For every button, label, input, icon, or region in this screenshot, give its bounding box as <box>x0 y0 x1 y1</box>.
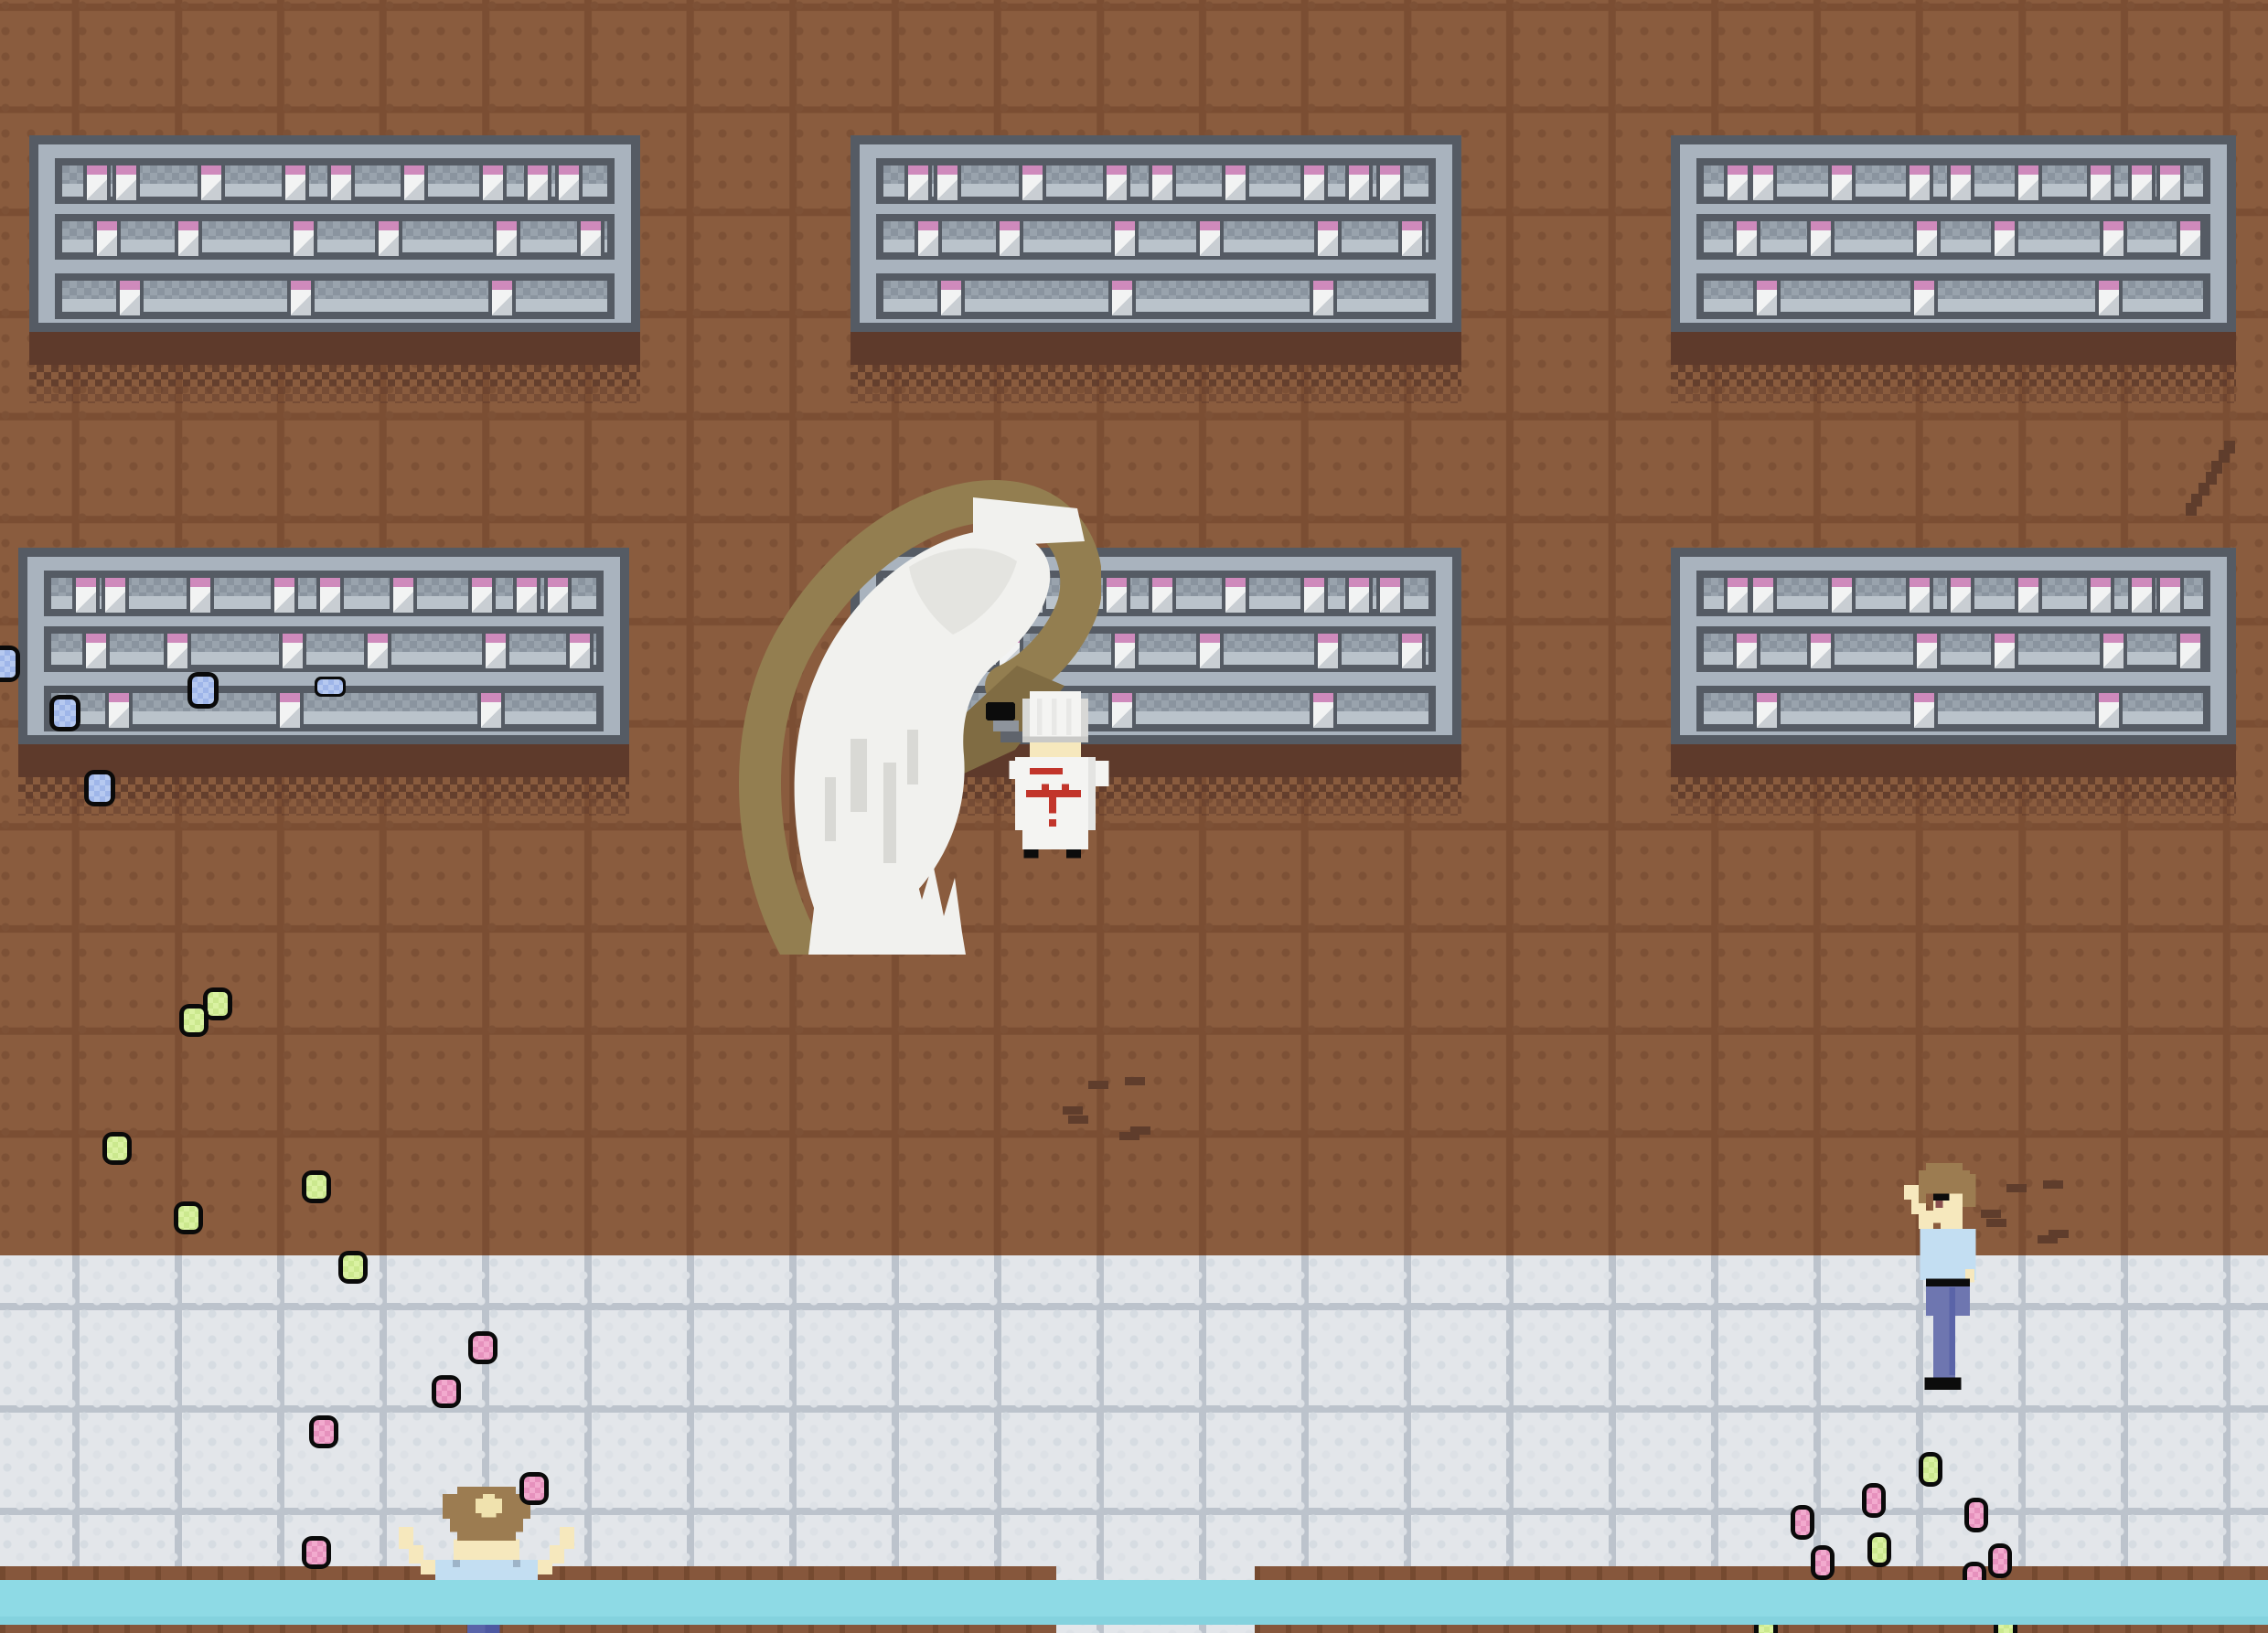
milk-carton <box>97 221 117 256</box>
milk-carton <box>1910 578 1930 613</box>
milk-carton <box>1107 165 1127 200</box>
milk-carton <box>1811 221 1831 256</box>
milk-carton-slot <box>271 574 298 613</box>
milk-carton <box>1000 221 1020 256</box>
shelf-row <box>44 626 604 672</box>
milk-carton <box>2160 165 2180 200</box>
milk-carton <box>86 634 106 668</box>
milk-carton-slot <box>83 162 111 200</box>
milk-carton <box>1728 165 1748 200</box>
milk-carton <box>1225 165 1246 200</box>
candy-green[interactable] <box>302 1170 331 1203</box>
milk-carton-slot <box>316 574 344 613</box>
milk-carton-slot <box>1906 162 1933 200</box>
candy-fill <box>524 1477 544 1500</box>
milk-carton-slot <box>1111 218 1139 256</box>
candy-pink[interactable] <box>1862 1483 1886 1518</box>
milk-carton-slot <box>555 162 583 200</box>
shelf-unit-6 <box>1671 548 2236 744</box>
milk-carton-slot <box>544 574 572 613</box>
milk-carton-slot <box>1807 218 1835 256</box>
candy-green[interactable] <box>1867 1532 1891 1567</box>
shelf-shadow <box>29 332 640 365</box>
shelf-unit-2 <box>850 135 1461 332</box>
milk-carton-slot <box>401 162 428 200</box>
milk-carton <box>167 634 187 668</box>
milk-carton <box>1304 578 1324 613</box>
milk-carton <box>201 165 221 200</box>
candy-fill <box>1923 1457 1938 1482</box>
shelf-row <box>876 273 1436 319</box>
milk-carton-slot <box>290 218 317 256</box>
milk-carton-slot <box>904 162 932 200</box>
milk-carton <box>1951 165 1971 200</box>
milk-carton <box>1115 634 1135 668</box>
milk-carton <box>331 165 351 200</box>
milk-carton <box>548 578 568 613</box>
candy-fill <box>208 992 228 1016</box>
milk-carton <box>2180 221 2200 256</box>
milk-carton-slot <box>2100 218 2127 256</box>
milk-carton-slot <box>2177 218 2204 256</box>
milk-carton <box>1757 281 1777 315</box>
shelf-row <box>1696 571 2210 616</box>
candy-blue[interactable] <box>49 695 80 731</box>
milk-carton <box>1152 165 1172 200</box>
milk-carton <box>2099 693 2119 728</box>
shelf-row <box>55 273 615 319</box>
milk-carton-slot <box>524 162 551 200</box>
milk-carton <box>1152 578 1172 613</box>
milk-carton <box>2132 578 2152 613</box>
milk-carton-slot <box>1103 162 1130 200</box>
candy-fill <box>0 650 16 678</box>
candy-pink[interactable] <box>302 1536 331 1569</box>
milk-carton-slot <box>1196 218 1224 256</box>
milk-carton-slot <box>164 630 191 668</box>
shelf-row <box>1696 158 2210 204</box>
milk-carton-slot <box>1222 574 1249 613</box>
milk-carton-slot <box>1947 574 1974 613</box>
milk-carton-slot <box>187 574 214 613</box>
milk-carton <box>472 578 492 613</box>
milk-carton-slot <box>2087 574 2114 613</box>
milk-carton <box>1832 578 1852 613</box>
milk-carton <box>280 693 300 728</box>
milk-carton-slot <box>287 277 315 315</box>
milk-carton-slot <box>468 574 496 613</box>
candy-blue[interactable] <box>84 770 115 806</box>
milk-carton-slot <box>1314 630 1342 668</box>
candy-pink[interactable] <box>1964 1498 1988 1532</box>
milk-carton <box>1115 221 1135 256</box>
shelf-row <box>876 158 1436 204</box>
candy-fill <box>184 1009 204 1032</box>
milk-carton <box>1402 221 1422 256</box>
milk-carton-slot <box>2156 574 2184 613</box>
milk-carton-slot <box>488 277 516 315</box>
milk-carton <box>178 221 198 256</box>
shelf-shadow <box>1671 744 2236 777</box>
milk-carton <box>1995 221 2015 256</box>
milk-carton-slot <box>1149 162 1176 200</box>
milk-carton <box>2103 634 2124 668</box>
milk-carton-slot <box>2095 277 2123 315</box>
shelf-shadow <box>1671 332 2236 365</box>
milk-carton <box>76 578 96 613</box>
milk-carton-slot <box>2156 162 2184 200</box>
milk-carton <box>291 281 311 315</box>
milk-carton-slot <box>327 162 355 200</box>
candy-fill <box>1872 1537 1887 1563</box>
milk-carton <box>320 578 340 613</box>
milk-carton <box>109 693 129 728</box>
milk-carton-slot <box>1828 162 1856 200</box>
milk-carton-slot <box>479 162 507 200</box>
candy-green[interactable] <box>179 1004 209 1037</box>
shelf-row <box>1696 273 2210 319</box>
candy-pink[interactable] <box>468 1331 497 1364</box>
milk-carton <box>918 221 938 256</box>
milk-carton-slot <box>1733 218 1760 256</box>
milk-carton <box>1107 578 1127 613</box>
counter-wood-top-right <box>1255 1566 2268 1580</box>
milk-carton <box>481 693 501 728</box>
shelf-dither <box>29 365 640 418</box>
milk-carton-slot <box>198 162 225 200</box>
milk-carton <box>2091 165 2111 200</box>
milk-carton-slot <box>112 162 140 200</box>
milk-carton-slot <box>279 630 306 668</box>
milk-carton <box>1112 281 1132 315</box>
shelf-unit-1 <box>29 135 640 332</box>
milk-carton-slot <box>2128 574 2156 613</box>
candy-fill <box>343 1255 363 1279</box>
milk-carton <box>294 221 314 256</box>
candy-pink[interactable] <box>1988 1543 2012 1578</box>
milk-carton-slot <box>577 218 604 256</box>
candy-fill <box>314 1420 334 1444</box>
milk-carton-slot <box>1947 162 1974 200</box>
milk-carton-slot <box>937 277 965 315</box>
candy-fill <box>473 1336 493 1360</box>
shelf-row <box>55 214 615 260</box>
milk-carton <box>1225 578 1246 613</box>
milk-carton-slot <box>1906 574 1933 613</box>
milk-carton <box>1995 634 2015 668</box>
game-viewport[interactable] <box>0 0 2268 1633</box>
milk-carton-slot <box>364 630 391 668</box>
candy-fill <box>54 699 76 727</box>
shelf-row <box>876 214 1436 260</box>
milk-carton-slot <box>934 162 961 200</box>
candy-fill <box>192 677 214 704</box>
milk-carton-slot <box>1019 162 1046 200</box>
milk-carton-slot <box>2015 162 2042 200</box>
candy-green[interactable] <box>338 1251 368 1284</box>
milk-carton <box>393 578 413 613</box>
milk-carton <box>404 165 424 200</box>
milk-carton-slot <box>282 162 309 200</box>
milk-carton-slot <box>375 218 402 256</box>
shelf-row <box>44 571 604 616</box>
milk-carton <box>1753 578 1773 613</box>
shelf-row <box>55 158 615 204</box>
milk-carton <box>368 634 388 668</box>
milk-carton <box>1349 578 1369 613</box>
milk-carton <box>2018 578 2038 613</box>
milk-carton-slot <box>1724 162 1751 200</box>
milk-carton-slot <box>2015 574 2042 613</box>
shelf-unit-4 <box>18 548 629 744</box>
milk-carton-slot <box>1910 689 1938 728</box>
milk-carton-slot <box>482 630 509 668</box>
milk-carton-slot <box>1398 630 1426 668</box>
milk-carton <box>2103 221 2124 256</box>
milk-carton-slot <box>1300 162 1328 200</box>
milk-carton <box>1313 281 1333 315</box>
milk-carton-slot <box>477 689 505 728</box>
milk-carton <box>1753 165 1773 200</box>
debris-ring <box>1088 1081 1108 1089</box>
shelf-dither <box>1671 777 2236 830</box>
milk-carton-slot <box>1828 574 1856 613</box>
milk-carton <box>941 281 961 315</box>
shelf-row <box>1696 686 2210 731</box>
milk-carton-slot <box>1103 574 1130 613</box>
milk-carton-slot <box>915 218 942 256</box>
milk-carton <box>937 165 957 200</box>
milk-carton <box>1728 578 1748 613</box>
milk-carton-slot <box>1108 277 1136 315</box>
candy-green[interactable] <box>1919 1452 1942 1487</box>
milk-carton <box>1380 578 1400 613</box>
candy-blue[interactable] <box>315 677 346 697</box>
debris-scratch <box>2191 494 2202 507</box>
milk-carton <box>379 221 399 256</box>
milk-carton-slot <box>1345 162 1373 200</box>
milk-carton <box>1757 693 1777 728</box>
milk-carton <box>1022 165 1043 200</box>
milk-carton-slot <box>1807 630 1835 668</box>
milk-carton-slot <box>1376 162 1404 200</box>
candy-fill <box>1795 1510 1810 1535</box>
milk-carton <box>1737 634 1757 668</box>
milk-carton-slot <box>1991 218 2018 256</box>
milk-carton-slot <box>1149 574 1176 613</box>
milk-carton-slot <box>566 630 594 668</box>
milk-carton <box>908 165 928 200</box>
milk-carton-slot <box>2087 162 2114 200</box>
milk-carton <box>1951 578 1971 613</box>
milk-carton <box>581 221 601 256</box>
milk-carton-slot <box>1222 162 1249 200</box>
milk-carton-slot <box>276 689 304 728</box>
candy-pink[interactable] <box>432 1375 461 1408</box>
candy-pink[interactable] <box>1791 1505 1814 1540</box>
milk-carton <box>1402 634 1422 668</box>
candy-fill <box>107 1137 127 1160</box>
milk-carton-slot <box>1733 630 1760 668</box>
debris-ring <box>2006 1184 2027 1192</box>
candy-fill <box>317 679 343 694</box>
milk-carton-slot <box>1345 574 1373 613</box>
milk-carton-slot <box>116 277 144 315</box>
candy-pink[interactable] <box>519 1472 549 1505</box>
milk-carton <box>570 634 590 668</box>
shopper-character[interactable] <box>1904 1163 1992 1397</box>
milk-carton <box>1917 634 1937 668</box>
milk-carton <box>517 578 537 613</box>
milk-carton <box>190 578 210 613</box>
candy-fill <box>436 1380 456 1404</box>
milk-carton <box>1811 634 1831 668</box>
chef-character[interactable] <box>986 691 1118 859</box>
candy-blue[interactable] <box>0 646 20 682</box>
shelf-row <box>1696 626 2210 672</box>
milk-carton <box>1318 221 1338 256</box>
milk-carton-slot <box>175 218 202 256</box>
milk-carton-slot <box>1753 689 1781 728</box>
milk-carton <box>2180 634 2200 668</box>
conveyor-belt <box>0 1580 2268 1625</box>
milk-carton-slot <box>493 218 520 256</box>
milk-carton-slot <box>1398 218 1426 256</box>
milk-carton-slot <box>2177 630 2204 668</box>
milk-carton-slot <box>93 218 121 256</box>
milk-carton <box>1832 165 1852 200</box>
milk-carton-slot <box>2100 630 2127 668</box>
candy-pink[interactable] <box>309 1415 338 1448</box>
milk-carton <box>1917 221 1937 256</box>
candy-fill <box>1993 1548 2007 1574</box>
milk-carton-slot <box>513 574 540 613</box>
milk-carton <box>283 634 303 668</box>
milk-carton-slot <box>1376 574 1404 613</box>
candy-green[interactable] <box>174 1201 203 1234</box>
milk-carton <box>1304 165 1324 200</box>
shelf-dither <box>850 365 1461 418</box>
milk-carton <box>1914 281 1934 315</box>
milk-carton <box>1200 634 1220 668</box>
candy-fill <box>89 774 111 802</box>
shelf-row <box>1696 214 2210 260</box>
candy-fill <box>1815 1550 1830 1575</box>
milk-carton <box>120 281 140 315</box>
milk-carton <box>1914 693 1934 728</box>
milk-carton-slot <box>82 630 110 668</box>
milk-carton <box>1349 165 1369 200</box>
milk-carton-slot <box>1314 218 1342 256</box>
milk-carton-slot <box>1913 630 1941 668</box>
candy-green[interactable] <box>102 1132 132 1165</box>
milk-carton <box>87 165 107 200</box>
milk-carton-slot <box>1910 277 1938 315</box>
milk-carton <box>1200 221 1220 256</box>
milk-carton <box>492 281 512 315</box>
milk-carton-slot <box>996 218 1023 256</box>
milk-carton <box>559 165 579 200</box>
milk-carton <box>2132 165 2152 200</box>
shelf-shadow <box>850 332 1461 365</box>
milk-carton <box>2018 165 2038 200</box>
milk-carton <box>1313 693 1333 728</box>
milk-carton <box>1737 221 1757 256</box>
candy-fill <box>178 1206 198 1230</box>
milk-carton <box>2091 578 2111 613</box>
candy-fill <box>306 1175 326 1199</box>
candy-fill <box>1969 1502 1984 1528</box>
milk-carton <box>2160 578 2180 613</box>
milk-carton <box>105 578 125 613</box>
shelf-unit-3 <box>1671 135 2236 332</box>
milk-carton <box>274 578 294 613</box>
milk-carton-slot <box>1300 574 1328 613</box>
milk-carton <box>486 634 506 668</box>
milk-carton-slot <box>1991 630 2018 668</box>
milk-carton-slot <box>102 574 129 613</box>
milk-carton <box>2099 281 2119 315</box>
milk-carton-slot <box>1310 277 1337 315</box>
candy-pink[interactable] <box>1811 1545 1835 1580</box>
milk-carton-slot <box>1753 277 1781 315</box>
milk-carton <box>1318 634 1338 668</box>
milk-carton <box>285 165 305 200</box>
shelf-dither <box>1671 365 2236 418</box>
milk-carton-slot <box>1913 218 1941 256</box>
milk-carton-slot <box>72 574 100 613</box>
milk-carton <box>1380 165 1400 200</box>
milk-carton <box>483 165 503 200</box>
candy-fill <box>1867 1488 1881 1513</box>
milk-carton <box>497 221 517 256</box>
milk-carton-slot <box>1196 630 1224 668</box>
milk-carton-slot <box>105 689 133 728</box>
milk-carton-slot <box>390 574 417 613</box>
milk-carton-slot <box>1749 162 1777 200</box>
milk-carton <box>116 165 136 200</box>
milk-carton-slot <box>1111 630 1139 668</box>
milk-carton <box>1910 165 1930 200</box>
candy-fill <box>306 1541 326 1564</box>
milk-carton-slot <box>1310 689 1337 728</box>
milk-carton-slot <box>1749 574 1777 613</box>
milk-carton-slot <box>2128 162 2156 200</box>
candy-blue[interactable] <box>187 672 219 709</box>
milk-carton-slot <box>2095 689 2123 728</box>
milk-carton-slot <box>1724 574 1751 613</box>
milk-carton <box>528 165 548 200</box>
